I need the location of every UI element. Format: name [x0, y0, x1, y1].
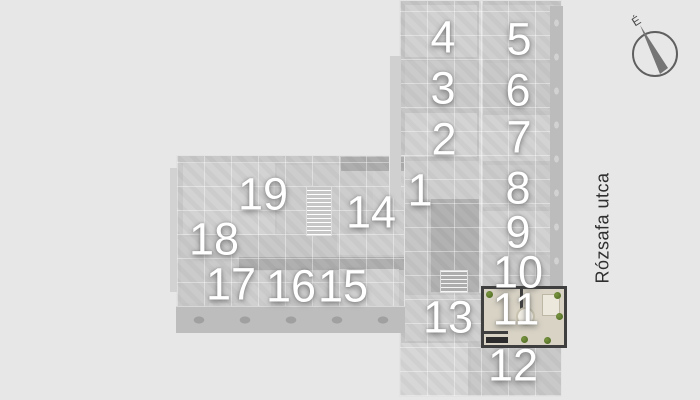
courtyard-stairs-icon: [440, 270, 468, 293]
stairwell-icon: [306, 186, 332, 236]
unit-label-8[interactable]: 8: [505, 166, 530, 211]
unit-label-16[interactable]: 16: [266, 264, 316, 309]
plant-icon: [556, 313, 563, 320]
unit-label-15[interactable]: 15: [318, 264, 368, 309]
unit-label-13[interactable]: 13: [423, 295, 473, 340]
street-label: Rózsafa utca: [593, 172, 614, 283]
unit-label-3[interactable]: 3: [430, 66, 455, 111]
unit-label-11[interactable]: 11: [493, 287, 540, 332]
unit-label-4[interactable]: 4: [430, 15, 455, 60]
floor-plan: 12345678910111213141516171819 Rózsafa ut…: [0, 0, 700, 400]
unit-label-1[interactable]: 1: [407, 168, 432, 213]
balcony-strip-left-wing: [170, 168, 177, 292]
unit-label-18[interactable]: 18: [189, 217, 239, 262]
plant-icon: [554, 292, 561, 299]
unit-label-19[interactable]: 19: [238, 172, 288, 217]
unit-label-17[interactable]: 17: [206, 262, 256, 307]
compass-north-label: É: [630, 12, 643, 29]
unit-label-14[interactable]: 14: [346, 190, 396, 235]
unit-label-6[interactable]: 6: [505, 68, 530, 113]
compass-icon: É: [630, 10, 682, 82]
unit-label-7[interactable]: 7: [506, 115, 531, 160]
unit-label-2[interactable]: 2: [431, 117, 456, 162]
unit-label-5[interactable]: 5: [506, 17, 531, 62]
balcony-strip-left-upper: [389, 56, 401, 198]
unit-label-12[interactable]: 12: [488, 343, 538, 388]
plant-icon: [544, 337, 551, 344]
